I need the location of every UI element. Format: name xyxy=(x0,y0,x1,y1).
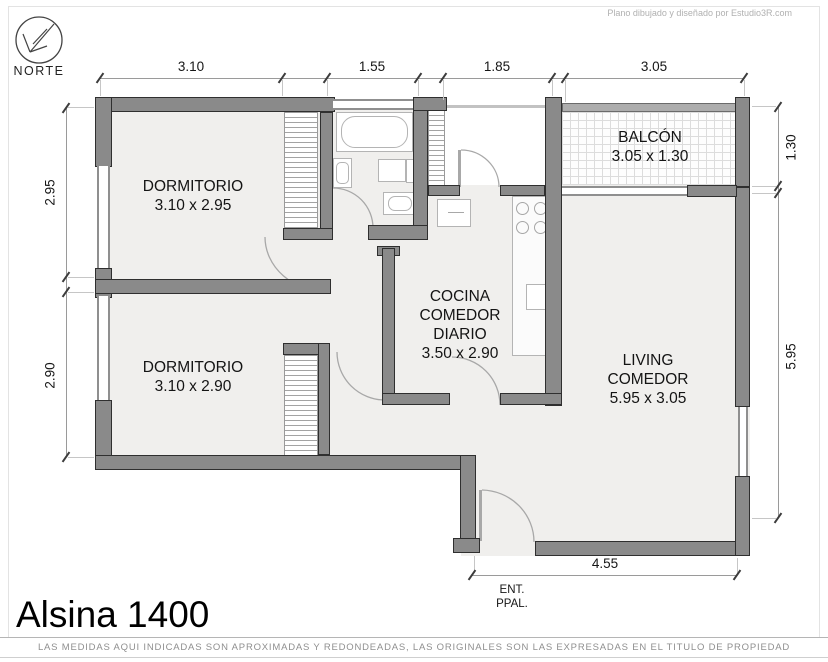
floor-plan-page: Plano dibujado y diseñado por Estudio3R.… xyxy=(0,0,828,662)
dim-ext xyxy=(68,277,94,278)
closet-2-right-wall xyxy=(318,343,330,455)
room-size: 5.95 x 3.05 xyxy=(568,389,728,408)
wall-bottom-left xyxy=(95,455,475,470)
room-size: 3.50 x 2.90 xyxy=(395,344,525,363)
room-label-cocina: COCINA COMEDOR DIARIO 3.50 x 2.90 xyxy=(395,287,525,363)
dim-ext xyxy=(68,457,94,458)
wall-kitchen-left xyxy=(382,248,395,398)
wall-kitchen-bottom-right xyxy=(500,393,562,405)
room-name: DORMITORIO xyxy=(112,358,274,377)
room-label-dormitorio-1: DORMITORIO 3.10 x 2.95 xyxy=(112,177,274,215)
room-size: 3.10 x 2.95 xyxy=(112,196,274,215)
room-label-dormitorio-2: DORMITORIO 3.10 x 2.90 xyxy=(112,358,274,396)
room-size: 3.10 x 2.90 xyxy=(112,377,274,396)
room-name: BALCÓN xyxy=(575,128,725,147)
dim-ext xyxy=(744,80,745,96)
room-name: DIARIO xyxy=(395,325,525,344)
dim-line-top xyxy=(100,78,744,79)
wall-entry-foot xyxy=(453,538,480,553)
dim-ext xyxy=(282,80,283,96)
wall-balcony-living xyxy=(687,185,737,197)
window-balcony-slider xyxy=(562,186,687,196)
window-dormitorio-1 xyxy=(97,166,110,274)
dim-ext xyxy=(752,186,776,187)
dim-left-2: 2.90 xyxy=(43,346,58,406)
patio-door-leaf xyxy=(458,150,461,187)
wall-kitchen-living-divider xyxy=(545,97,562,406)
dim-top-4: 3.05 xyxy=(624,59,684,74)
dim-right-2: 5.95 xyxy=(784,327,799,387)
entrance-line: ENT. xyxy=(482,583,542,597)
patio-top-line xyxy=(447,105,545,108)
wall-kitchen-top xyxy=(500,185,545,196)
dim-ext xyxy=(327,80,328,96)
window-dormitorio-2 xyxy=(97,296,110,402)
dim-ext xyxy=(565,80,566,102)
entrance-label: ENT. PPAL. xyxy=(482,583,542,611)
dim-line-right xyxy=(778,107,779,518)
room-name: DORMITORIO xyxy=(112,177,274,196)
balcony-railing xyxy=(562,103,737,112)
wall-left-upper xyxy=(95,97,112,167)
dim-line-bottom xyxy=(472,575,737,576)
closet-1-cap xyxy=(283,228,333,240)
wall-kitchen-bottom-left xyxy=(382,393,450,405)
wall-top-main xyxy=(95,97,335,112)
window-living xyxy=(738,407,748,476)
dim-ext xyxy=(100,80,101,96)
room-name: COMEDOR xyxy=(568,370,728,389)
window-bathroom xyxy=(333,99,413,110)
wall-bathroom-bottom xyxy=(368,225,428,240)
room-size: 3.05 x 1.30 xyxy=(575,147,725,166)
room-name: COCINA xyxy=(395,287,525,306)
dim-ext xyxy=(752,106,776,107)
dim-ext xyxy=(68,292,94,293)
entrance-line: PPAL. xyxy=(482,597,542,611)
room-label-living: LIVING COMEDOR 5.95 x 3.05 xyxy=(568,351,728,408)
room-name: COMEDOR xyxy=(395,306,525,325)
dim-ext xyxy=(752,518,776,519)
room-label-balcon: BALCÓN 3.05 x 1.30 xyxy=(575,128,725,166)
wall-bathroom-left xyxy=(320,112,333,240)
entry-door-leaf xyxy=(479,490,482,541)
footer-bar: LAS MEDIDAS AQUI INDICADAS SON APROXIMAD… xyxy=(0,637,828,658)
dim-ext xyxy=(418,80,419,96)
dim-top-2: 1.55 xyxy=(342,59,402,74)
wall-bottom-living xyxy=(535,541,750,556)
dim-ext xyxy=(552,80,553,96)
page-title: Alsina 1400 xyxy=(16,594,209,636)
wall-balcony-right xyxy=(735,97,750,187)
dim-ext xyxy=(443,80,444,100)
dim-ext xyxy=(752,193,776,194)
wall-between-bedrooms xyxy=(95,279,331,294)
wall-right-lower xyxy=(735,476,750,556)
dim-left-1: 2.95 xyxy=(43,163,58,223)
room-name: LIVING xyxy=(568,351,728,370)
dim-line-left xyxy=(66,108,67,457)
disclaimer-text: LAS MEDIDAS AQUI INDICADAS SON APROXIMAD… xyxy=(0,642,828,653)
dim-top-3: 1.85 xyxy=(467,59,527,74)
wall-right-mid xyxy=(735,187,750,407)
wall-top-block xyxy=(413,97,447,111)
dim-bottom-1: 4.55 xyxy=(575,556,635,571)
wall-bathroom-right xyxy=(413,110,428,228)
dim-ext xyxy=(68,107,94,108)
dim-top-1: 3.10 xyxy=(161,59,221,74)
duct-bottom-cap xyxy=(428,185,460,196)
dim-right-1: 1.30 xyxy=(784,118,799,178)
